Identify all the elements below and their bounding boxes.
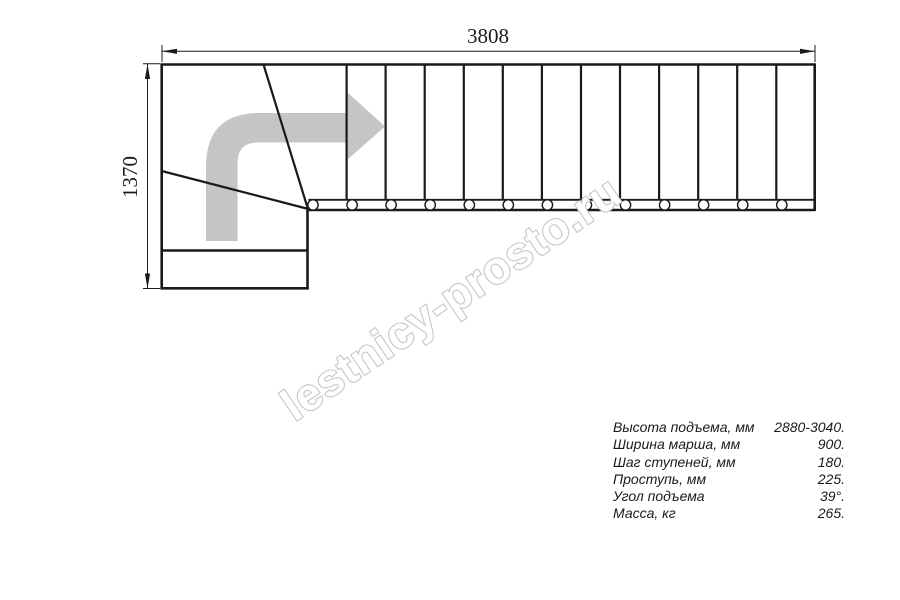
spec-row-tread: Проступь, мм 225. [613, 471, 845, 488]
watermark-text: lestnicy-prosto.ru [272, 166, 631, 431]
width-dimension-label: 3808 [455, 24, 521, 49]
spec-label: Проступь, мм [613, 471, 714, 488]
spec-row-step: Шаг ступеней, мм 180. [613, 454, 845, 471]
spec-value: 900. [818, 436, 845, 453]
spec-value: 39°. [820, 488, 845, 505]
stair-drawing-page: lestnicy-prosto.ru 3808 1370 Высота подъ… [0, 0, 900, 600]
spec-label: Шаг ступеней, мм [613, 454, 744, 471]
spec-label: Высота подъема, мм [613, 419, 763, 436]
riser-lines [347, 65, 777, 200]
spec-label: Угол подъема [613, 488, 713, 505]
spec-row-height: Высота подъема, мм 2880-3040. [613, 419, 845, 436]
spec-row-mass: Масса, кг 265. [613, 505, 845, 522]
spec-value: 2880-3040. [774, 419, 845, 436]
spec-value: 265. [818, 505, 845, 522]
spec-value: 225. [818, 471, 845, 488]
height-dimension-label: 1370 [118, 144, 140, 210]
spec-label: Масса, кг [613, 505, 684, 522]
spec-table: Высота подъема, мм 2880-3040. Ширина мар… [613, 419, 845, 523]
spec-label: Ширина марша, мм [613, 436, 748, 453]
spec-row-angle: Угол подъема 39°. [613, 488, 845, 505]
spec-value: 180. [818, 454, 845, 471]
spec-row-flight-width: Ширина марша, мм 900. [613, 436, 845, 453]
